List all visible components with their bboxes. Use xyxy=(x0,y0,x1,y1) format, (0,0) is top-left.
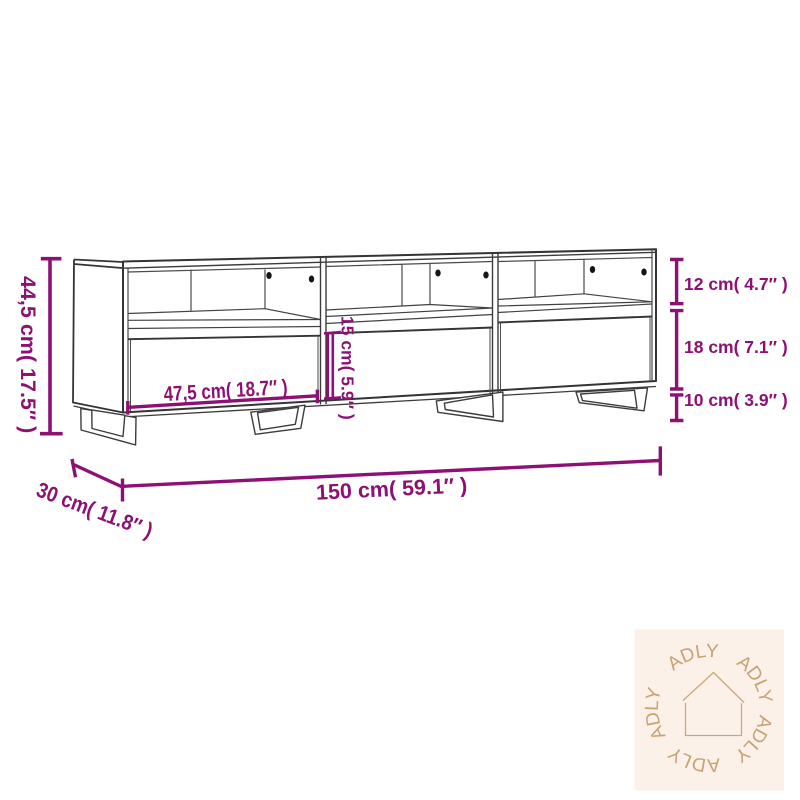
svg-text:12 cm( 4.7″ ): 12 cm( 4.7″ ) xyxy=(684,274,788,294)
svg-text:10 cm( 3.9″ ): 10 cm( 3.9″ ) xyxy=(684,390,788,410)
svg-text:18 cm( 7.1″ ): 18 cm( 7.1″ ) xyxy=(684,337,788,357)
svg-text:15 cm( 5.9″ ): 15 cm( 5.9″ ) xyxy=(338,316,358,420)
svg-text:44,5 cm( 17.5″ ): 44,5 cm( 17.5″ ) xyxy=(16,276,40,433)
